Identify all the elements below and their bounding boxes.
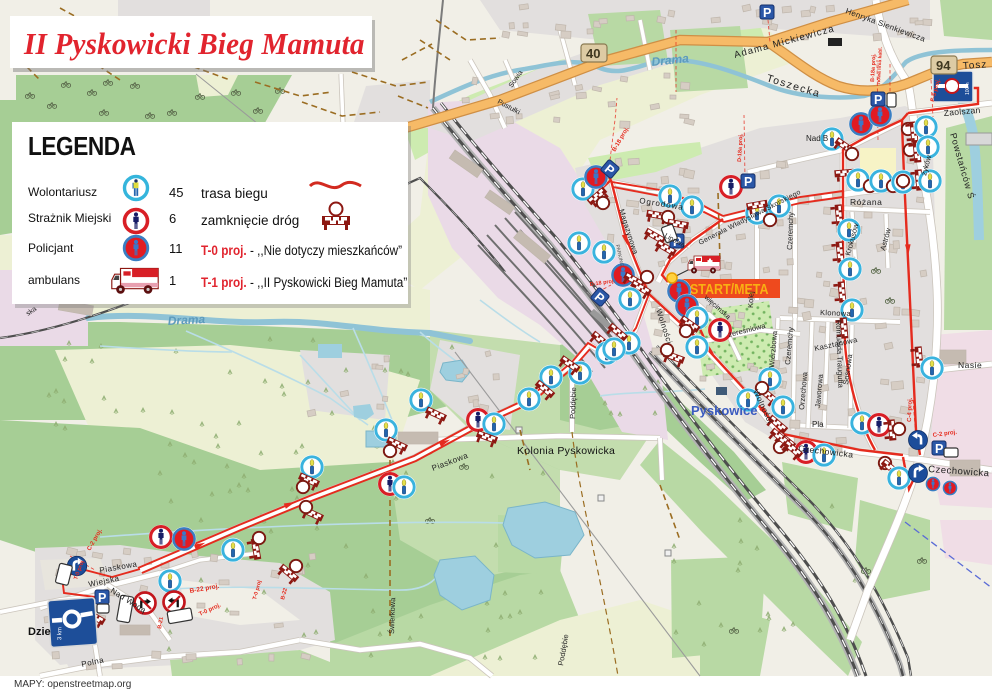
svg-text:Kolonia Pyskowicka: Kolonia Pyskowicka (517, 445, 615, 457)
svg-text:Dzie: Dzie (28, 626, 51, 638)
svg-text:Różana: Różana (850, 197, 882, 207)
svg-text:START/META: START/META (690, 281, 769, 297)
svg-text:Nad B: Nad B (806, 134, 828, 143)
svg-text:Czeremchy: Czeremchy (785, 212, 795, 250)
svg-text:40: 40 (586, 46, 600, 61)
svg-text:Klonowa: Klonowa (820, 308, 852, 318)
svg-text:Pyskowice: Pyskowice (691, 403, 758, 418)
svg-text:3 km: 3 km (57, 627, 63, 640)
svg-text:Świerkowa: Świerkowa (387, 597, 397, 634)
svg-text:Nasie: Nasie (958, 360, 982, 370)
svg-text:Tosz: Tosz (962, 59, 987, 72)
svg-text:Kolej: Kolej (746, 291, 756, 308)
svg-text:Poddębie: Poddębie (568, 387, 578, 419)
svg-text:94: 94 (936, 58, 951, 73)
svg-text:Pla: Pla (812, 420, 824, 429)
svg-text:C-4 proj.: C-4 proj. (907, 397, 914, 422)
svg-text:Drama: Drama (167, 312, 205, 328)
svg-text:100m: 100m (965, 82, 971, 95)
